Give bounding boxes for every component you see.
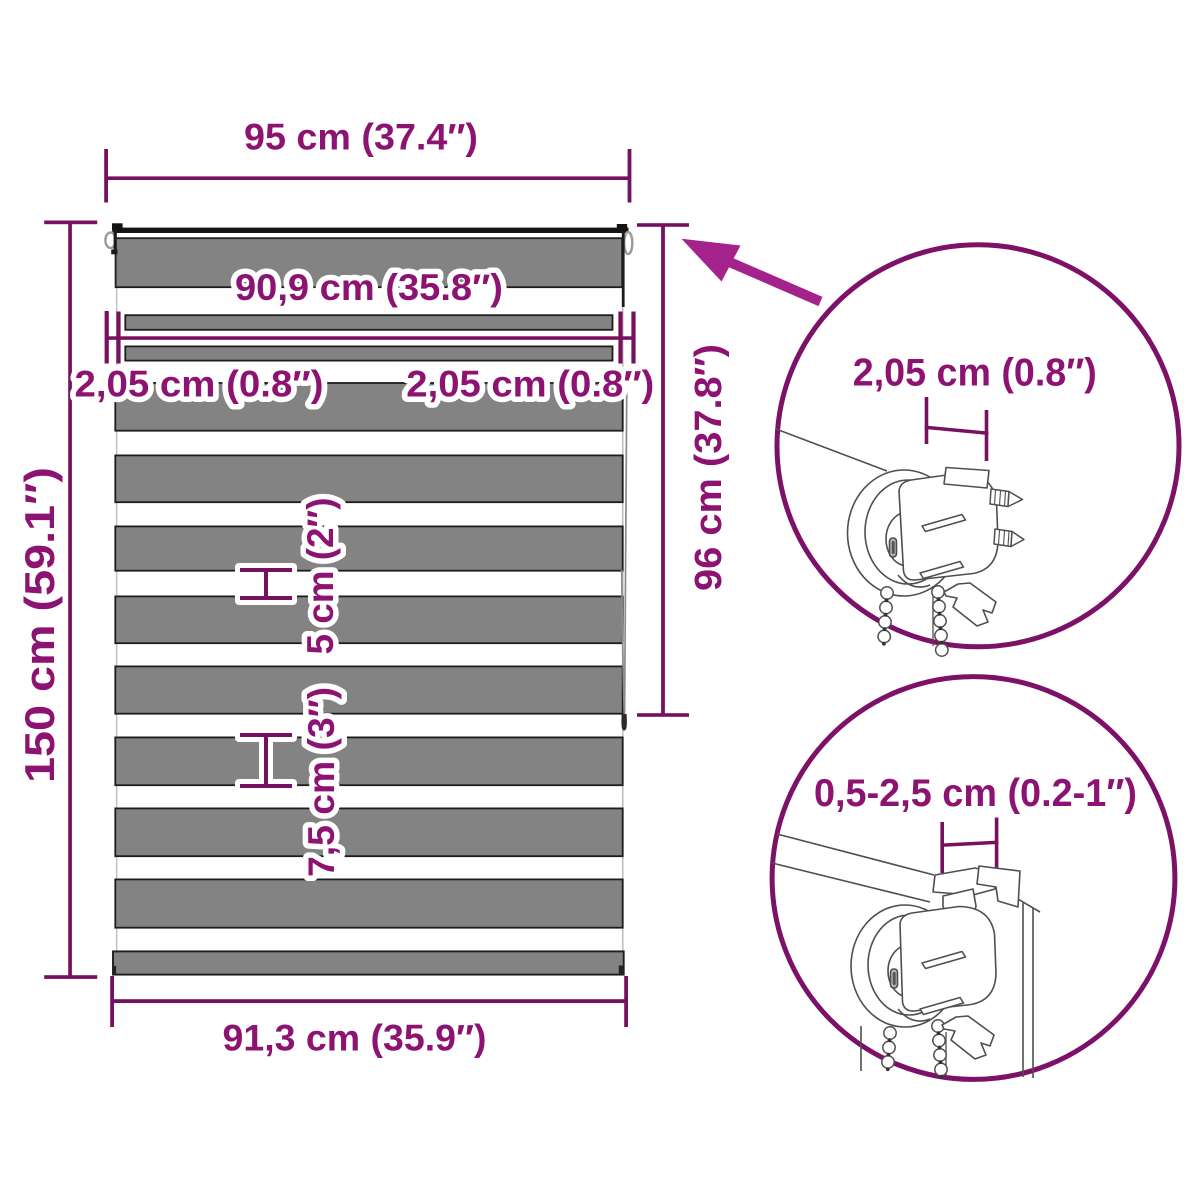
svg-text:91,3 cm (35.9″): 91,3 cm (35.9″) <box>223 1018 487 1059</box>
svg-text:2,05 cm (0.8″): 2,05 cm (0.8″) <box>406 364 654 405</box>
svg-text:96 cm (37.8″): 96 cm (37.8″) <box>688 344 730 591</box>
svg-text:95 cm (37.4″): 95 cm (37.4″) <box>244 117 478 158</box>
svg-text:2,05 cm (0.8″): 2,05 cm (0.8″) <box>853 352 1097 395</box>
svg-text:5 cm (2″): 5 cm (2″) <box>300 498 341 655</box>
svg-text:150 cm (59.1″): 150 cm (59.1″) <box>16 467 63 783</box>
svg-text:7,5 cm (3″): 7,5 cm (3″) <box>301 687 342 877</box>
svg-text:0,5-2,5 cm (0.2-1″): 0,5-2,5 cm (0.2-1″) <box>814 772 1137 815</box>
svg-text:2,05 cm (0.8″): 2,05 cm (0.8″) <box>75 364 324 405</box>
svg-text:90,9 cm (35.8″): 90,9 cm (35.8″) <box>235 267 503 308</box>
